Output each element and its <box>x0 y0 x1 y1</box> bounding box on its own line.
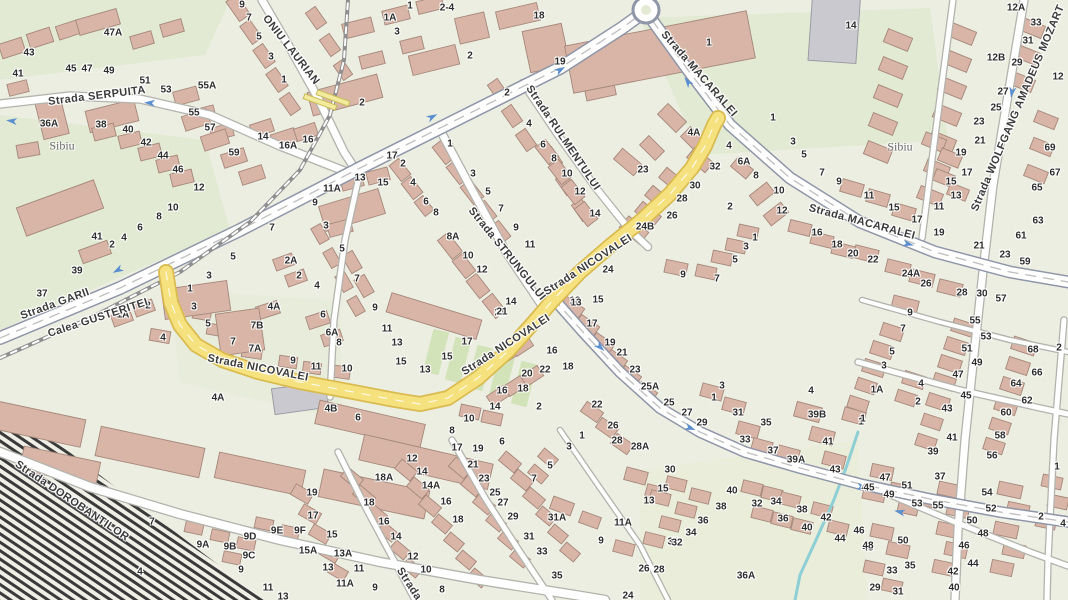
roundabout-island <box>641 5 651 15</box>
building <box>808 0 862 64</box>
map-canvas[interactable]: 9753147A4341454749515355A555759384042444… <box>0 0 1068 600</box>
map-geometry <box>0 0 1068 600</box>
building <box>278 355 297 368</box>
building <box>215 308 264 356</box>
building <box>302 361 321 374</box>
